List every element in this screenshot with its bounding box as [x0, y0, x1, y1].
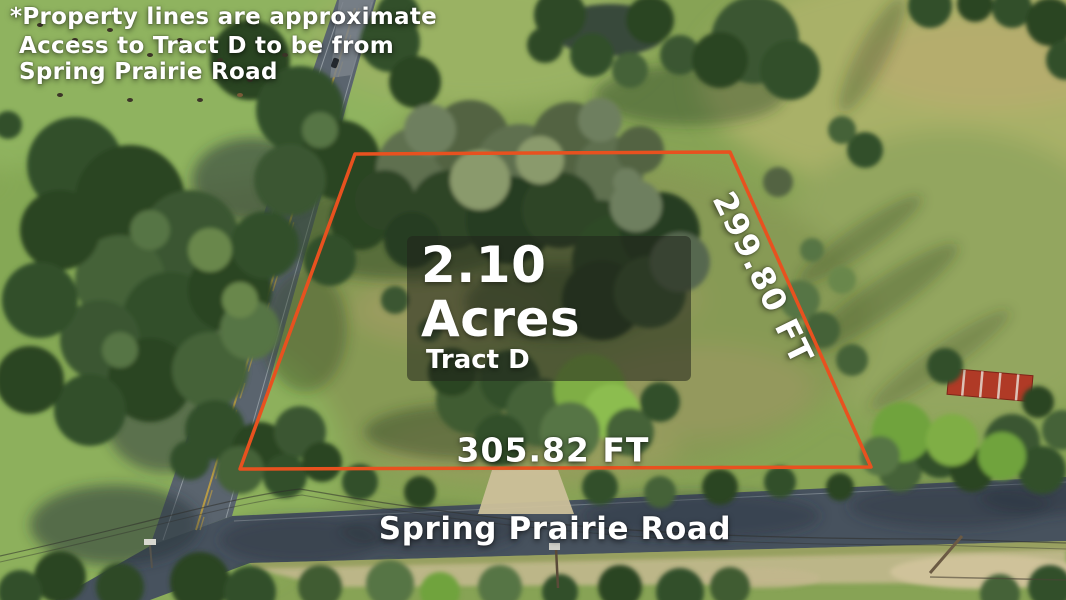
driveway — [478, 470, 574, 514]
access-note-line2: Spring Prairie Road — [19, 59, 394, 85]
acreage-value: 2.10 Acres — [421, 238, 677, 346]
dimension-bottom-side: 305.82 FT — [457, 431, 650, 470]
access-note-line1: Access to Tract D to be from — [19, 33, 394, 59]
tract-name: Tract D — [426, 347, 677, 374]
acreage-label-box: 2.10 Acres Tract D — [407, 236, 691, 381]
listing-photo: *Property lines are approximate Access t… — [0, 0, 1066, 600]
access-note: Access to Tract D to be from Spring Prai… — [19, 33, 394, 85]
street-sign — [144, 539, 156, 545]
road-name-label: Spring Prairie Road — [379, 511, 731, 547]
disclaimer-note: *Property lines are approximate — [10, 4, 437, 30]
